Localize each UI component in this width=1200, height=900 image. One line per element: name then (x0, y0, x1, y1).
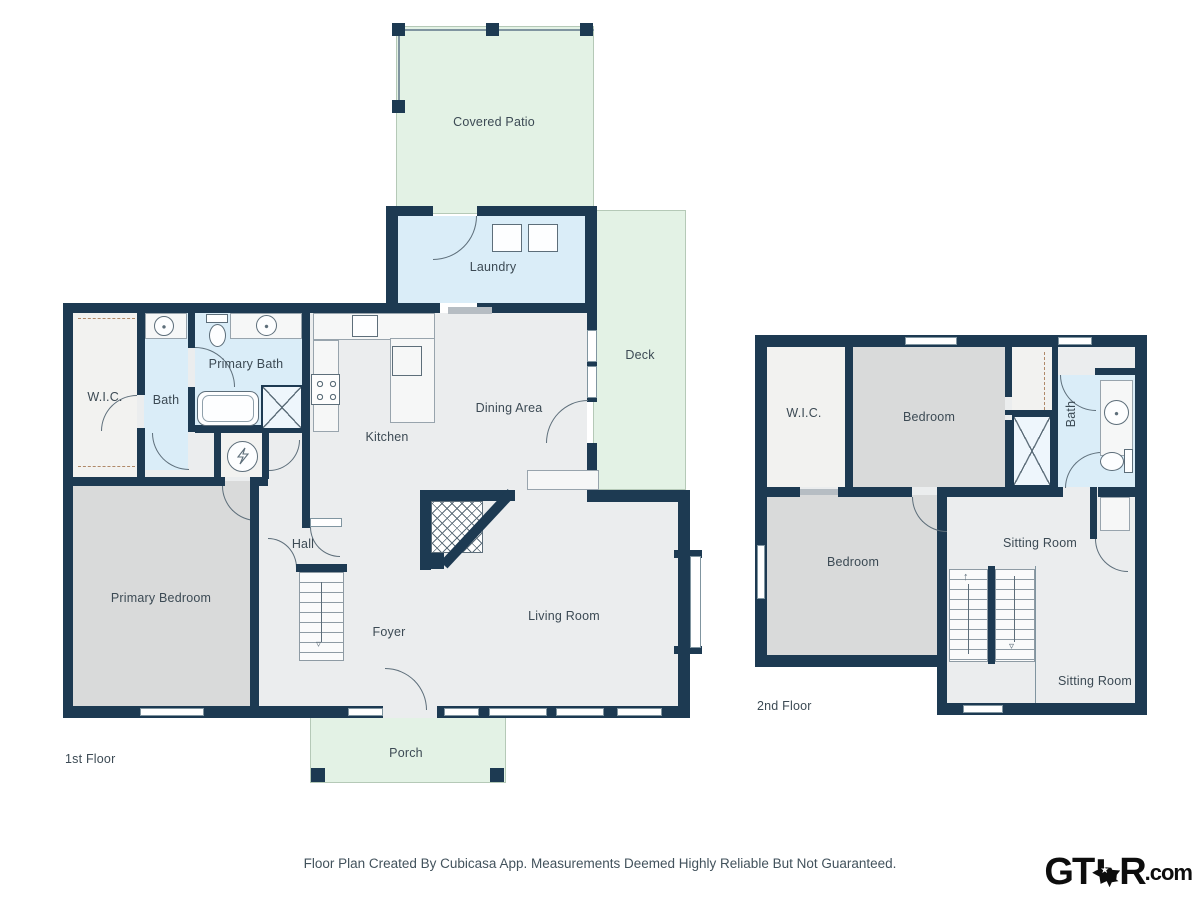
cased-opening (800, 489, 838, 495)
wall (262, 433, 269, 479)
bedroom-bottom-room (765, 495, 937, 655)
wall (1052, 410, 1058, 487)
patio-post (392, 23, 405, 36)
sink (154, 316, 174, 336)
wall (214, 433, 221, 479)
room-label-foyer: Foyer (373, 625, 406, 639)
stair-down-arrow-icon: ▿ (316, 640, 321, 650)
wall (386, 303, 440, 313)
patio-post (580, 23, 593, 36)
wall (63, 303, 396, 313)
closet-rod (78, 318, 135, 319)
stair-down-arrow-icon: ▿ (1009, 642, 1014, 652)
wall (845, 345, 853, 487)
wall (755, 655, 947, 667)
shower (1012, 415, 1052, 487)
window (757, 545, 765, 599)
floor2-label: 2nd Floor (757, 699, 812, 713)
lightning-icon (232, 445, 254, 467)
wall (765, 487, 800, 497)
window (587, 366, 597, 398)
window (140, 708, 204, 716)
room-label-wic2: W.I.C. (786, 406, 821, 420)
shower (261, 385, 303, 430)
wall (585, 206, 597, 310)
wall (137, 428, 145, 481)
porch-post (490, 768, 504, 782)
stair-arrow-line (1014, 576, 1015, 642)
toilet (209, 324, 226, 347)
wall (587, 490, 690, 502)
cased-opening (448, 307, 492, 314)
stair-divider-wall (988, 566, 995, 664)
room-label-hall: Hall (292, 537, 314, 551)
wall (63, 303, 73, 718)
room-label-wic: W.I.C. (87, 390, 122, 404)
window (963, 705, 1003, 713)
room-label-covered-patio: Covered Patio (453, 115, 535, 129)
wall (1005, 345, 1012, 397)
wall (63, 477, 225, 486)
toilet-tank (1124, 449, 1133, 473)
logo-gt-text: GT (1044, 856, 1093, 888)
window (489, 708, 547, 716)
stove (311, 374, 340, 405)
toilet (1100, 452, 1124, 471)
sink (1104, 400, 1129, 425)
wall (1005, 420, 1012, 487)
wall (188, 313, 195, 348)
island-cooktop (392, 346, 422, 376)
room-label-kitchen: Kitchen (365, 430, 408, 444)
room-label-bedroom-top: Bedroom (903, 410, 955, 424)
wall (587, 398, 597, 402)
wall (838, 487, 912, 497)
wall (947, 487, 1063, 497)
room-label-bedroom-bottom: Bedroom (827, 555, 879, 569)
room-label-primary-bedroom: Primary Bedroom (111, 591, 211, 605)
gtar-logo: GT ★ R .com (1044, 856, 1192, 888)
wall (1090, 487, 1097, 539)
room-label-sitting-bottom: Sitting Room (1058, 674, 1132, 688)
room-label-deck: Deck (625, 348, 654, 362)
room-label-living: Living Room (528, 609, 600, 623)
bathtub-inner (202, 395, 254, 422)
porch-post (311, 768, 325, 782)
wall (587, 303, 597, 330)
wall (250, 477, 259, 706)
wall (188, 387, 195, 432)
wall (386, 206, 398, 313)
wall (1135, 335, 1147, 715)
sink (256, 315, 277, 336)
stairwell-edge (1035, 566, 1036, 703)
wall (1095, 368, 1137, 375)
window (617, 708, 662, 716)
stairs-down-flight (995, 569, 1035, 662)
room-label-bath: Bath (153, 393, 180, 407)
floor1-label: 1st Floor (65, 752, 115, 766)
wall (755, 335, 767, 667)
disclaimer-text: Floor Plan Created By Cubicasa App. Meas… (304, 856, 897, 871)
closet-rod (78, 466, 135, 467)
floor-plan-canvas: ▿ (0, 0, 1200, 900)
texas-shape-icon: ★ (1092, 859, 1120, 887)
wall (1098, 487, 1147, 497)
wall (477, 303, 597, 313)
wall (296, 564, 347, 572)
washer (492, 224, 522, 252)
dryer (528, 224, 558, 252)
stair-up-arrow-icon: ↑ (963, 572, 969, 583)
stair-arrow-line (968, 584, 969, 654)
room-label-porch: Porch (389, 746, 423, 760)
room-label-laundry: Laundry (470, 260, 517, 274)
logo-r-text: R (1119, 856, 1144, 888)
closet-shelf (1100, 497, 1130, 531)
kitchen-sink (352, 315, 378, 337)
room-label-primary-bath: Primary Bath (209, 357, 284, 371)
sideboard (527, 470, 599, 490)
window (348, 708, 383, 716)
room-label-bath2: Bath (1064, 401, 1078, 428)
texas-star-icon: ★ (1100, 865, 1109, 876)
window (1058, 337, 1092, 345)
living-room-extension (587, 490, 678, 706)
wall (678, 500, 690, 710)
window (556, 708, 604, 716)
patio-post (392, 100, 405, 113)
room-label-sitting-top: Sitting Room (1003, 536, 1077, 550)
patio-post (486, 23, 499, 36)
wall (477, 206, 597, 216)
wall (302, 313, 310, 528)
toilet-tank (206, 314, 228, 323)
window (587, 330, 597, 362)
wall (137, 313, 145, 395)
logo-com-text: .com (1145, 860, 1192, 886)
stair-arrow-line (321, 582, 322, 642)
window (444, 708, 479, 716)
wall (1052, 345, 1058, 410)
patio-beam (398, 29, 400, 111)
cased-opening (310, 518, 342, 527)
wall (1052, 368, 1058, 375)
room-label-dining: Dining Area (476, 401, 543, 415)
bay-window (690, 556, 701, 648)
window (905, 337, 957, 345)
